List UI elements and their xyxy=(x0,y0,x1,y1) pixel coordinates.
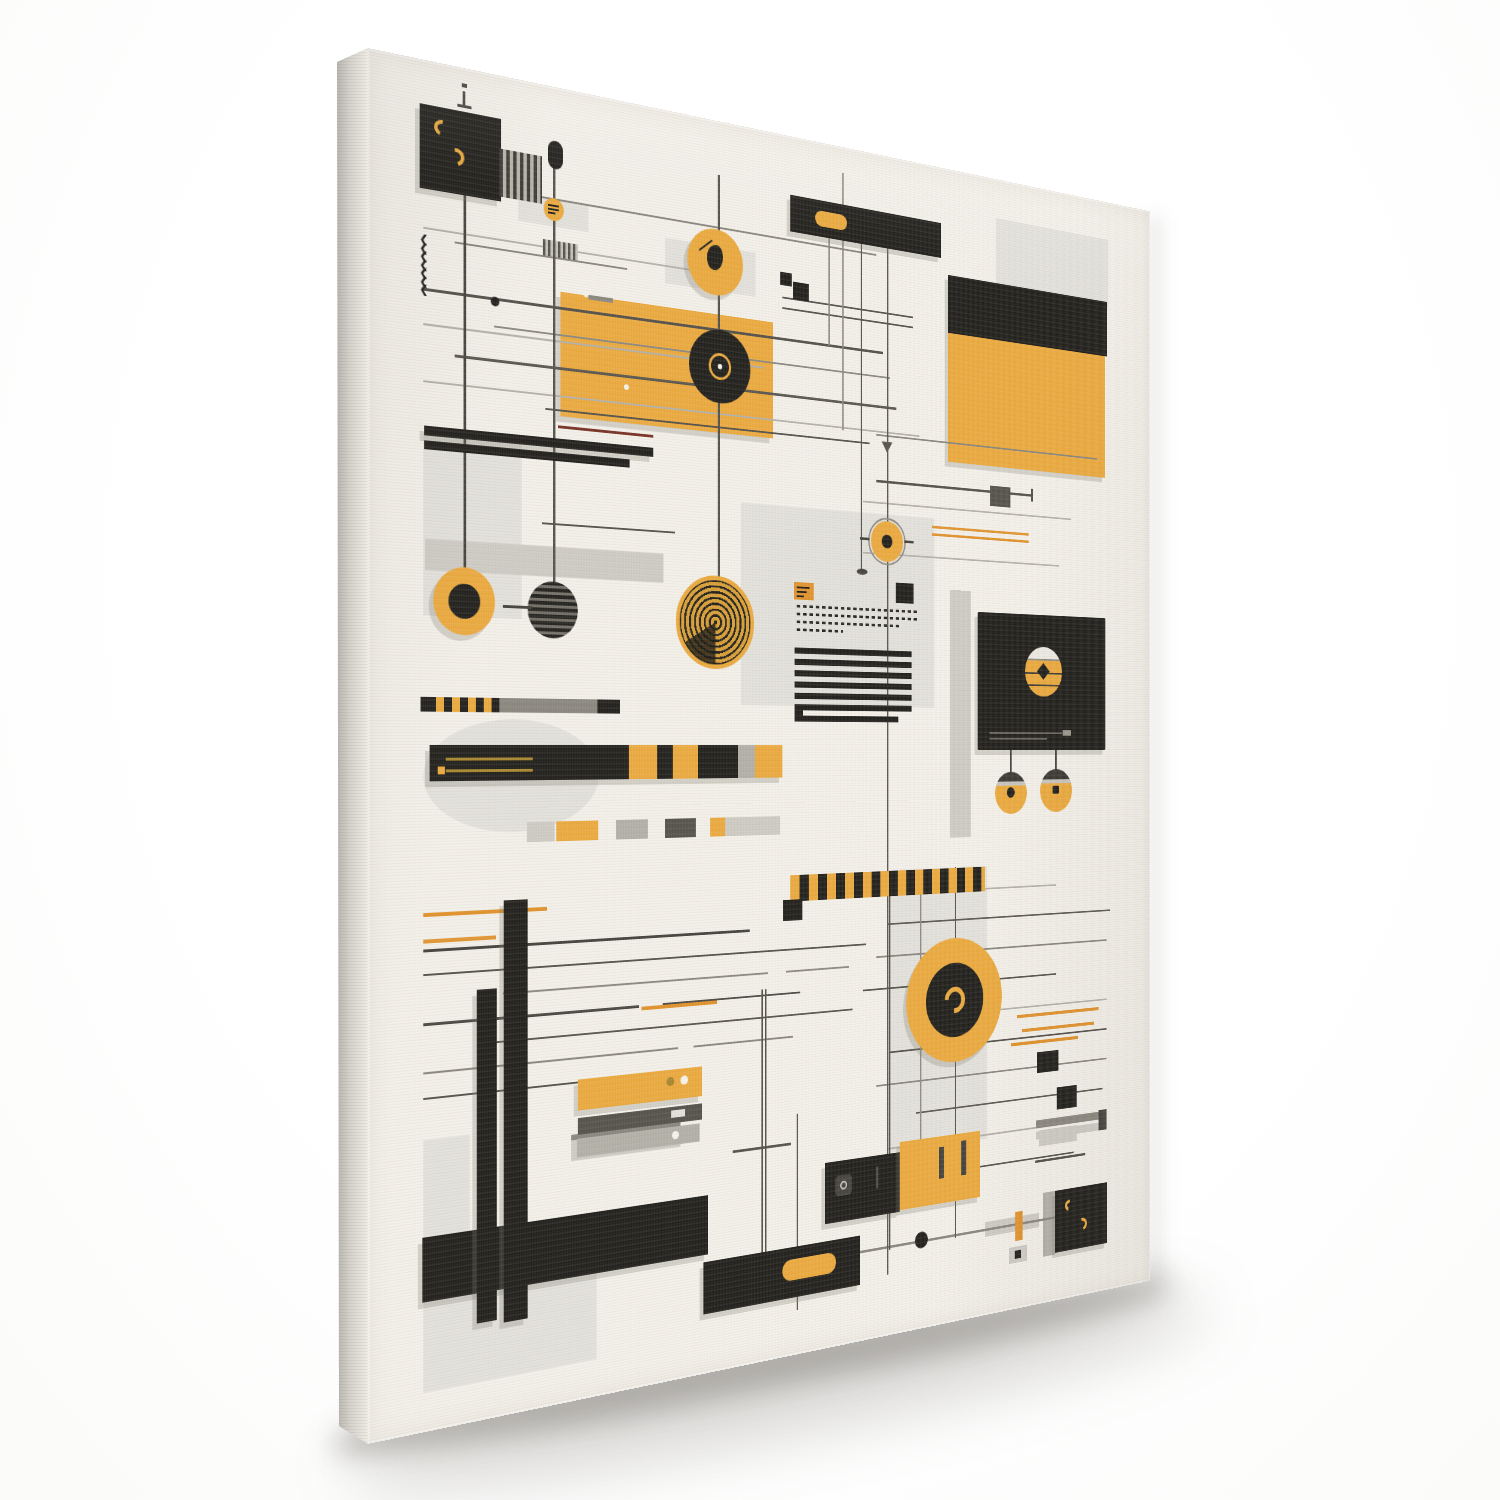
stripe xyxy=(795,659,912,668)
bar-inner-line xyxy=(446,757,533,760)
art-vline xyxy=(464,182,467,571)
bar-seg-yellow xyxy=(629,745,657,779)
barcode-segment xyxy=(421,697,436,712)
vinyl-dot xyxy=(718,364,722,370)
product-photo-scene: ❮ ❮ ❮ ❮ ❮ ❮ ❮ xyxy=(0,0,1500,1500)
art-vline xyxy=(553,167,556,585)
art-line-orange xyxy=(423,935,496,943)
stripe xyxy=(795,670,912,679)
black-dot xyxy=(491,296,500,307)
stripe-block xyxy=(795,647,912,716)
art-line-orange xyxy=(423,907,547,917)
speaker-line xyxy=(989,732,1062,734)
panel xyxy=(950,590,971,838)
pendant-dot xyxy=(857,568,868,575)
art-line xyxy=(423,1047,678,1074)
bar-seg-yellow xyxy=(673,745,698,779)
stripe-hook xyxy=(795,704,804,722)
hanging-glyph xyxy=(1053,786,1060,794)
art-line xyxy=(786,966,849,973)
barcode-strip xyxy=(421,697,620,714)
antenna-icon xyxy=(462,83,467,88)
art-vline xyxy=(765,989,766,1269)
speaker-glyph xyxy=(1063,730,1071,736)
white-dot xyxy=(584,291,589,297)
canvas-side-edge xyxy=(335,48,369,1445)
pill-bar-bottom xyxy=(703,1236,860,1315)
art-line xyxy=(423,1005,639,1026)
barcode-segment xyxy=(444,697,452,712)
cassette-tick xyxy=(876,1166,878,1188)
seg-chip xyxy=(527,822,555,843)
speaker-line xyxy=(989,738,1047,740)
gray-stripe-cap xyxy=(1099,1109,1107,1130)
tall-black-bar xyxy=(477,988,497,1323)
black-dot xyxy=(915,1231,928,1250)
orange-vbar xyxy=(1015,1211,1022,1241)
bar-inner-chip xyxy=(438,767,445,775)
chevron-stack-icon: ❮ ❮ ❮ ❮ ❮ ❮ ❮ xyxy=(420,234,434,295)
canvas-print: ❮ ❮ ❮ ❮ ❮ ❮ ❮ xyxy=(368,48,1150,1444)
art-vline xyxy=(861,214,862,572)
art-line xyxy=(503,972,768,994)
barcode-segment xyxy=(476,698,484,713)
barcode-segment xyxy=(597,699,620,713)
black-square-small xyxy=(896,583,914,604)
chip-line xyxy=(797,595,804,597)
seg-chip xyxy=(616,819,648,839)
barcode-segment xyxy=(484,698,492,713)
bar-seg-gray xyxy=(738,745,755,778)
funnel-icon xyxy=(882,441,893,453)
stem xyxy=(1010,750,1012,773)
seg-chip xyxy=(725,816,780,836)
art-line-maroon xyxy=(558,425,653,437)
stripe xyxy=(795,704,912,712)
black-bar-pill xyxy=(790,195,941,258)
yellow-circle-core xyxy=(448,583,480,619)
stripe xyxy=(795,681,912,689)
barcode-segment xyxy=(492,698,500,713)
stem xyxy=(1055,750,1057,771)
barcode-segment xyxy=(499,698,597,713)
art-line-orange xyxy=(1017,1007,1098,1018)
black-square-small xyxy=(780,272,791,287)
striped-bar xyxy=(430,745,783,781)
antenna-icon xyxy=(463,91,466,106)
seg-chip xyxy=(710,817,725,836)
black-pill xyxy=(548,139,563,170)
barcode-segment xyxy=(436,697,444,712)
barcode-segment xyxy=(460,697,468,712)
art-line xyxy=(423,929,749,952)
small-chip-glyph xyxy=(1015,1250,1021,1259)
stripe xyxy=(795,693,912,701)
seg-chip xyxy=(665,818,696,838)
art-line xyxy=(694,1036,794,1048)
bar-seg-yellow xyxy=(755,745,783,778)
art-line xyxy=(782,307,912,328)
black-square-small xyxy=(1057,1085,1077,1110)
barcode-segment xyxy=(452,697,460,712)
gray-square xyxy=(990,486,1010,508)
seg-chip xyxy=(556,820,598,841)
white-dot xyxy=(624,384,629,390)
black-square-small xyxy=(793,282,809,302)
stripe-hook xyxy=(803,716,898,723)
black-square-small xyxy=(783,899,802,921)
tall-black-bar xyxy=(504,899,528,1322)
tag xyxy=(1043,1191,1055,1257)
yellow-tick xyxy=(939,1147,944,1179)
art-line xyxy=(542,522,675,533)
art-vline xyxy=(761,989,762,1270)
artwork-layer: ❮ ❮ ❮ ❮ ❮ ❮ ❮ xyxy=(368,48,1150,1444)
yellow-tick xyxy=(961,1140,966,1175)
target-core xyxy=(882,534,893,548)
black-square-small xyxy=(1037,1050,1058,1073)
art-line-tick xyxy=(1031,489,1033,502)
striped-block xyxy=(499,148,542,203)
yellow-bar-dots xyxy=(578,1066,702,1110)
barcode-segment xyxy=(468,697,476,712)
striped-circle xyxy=(528,580,578,639)
